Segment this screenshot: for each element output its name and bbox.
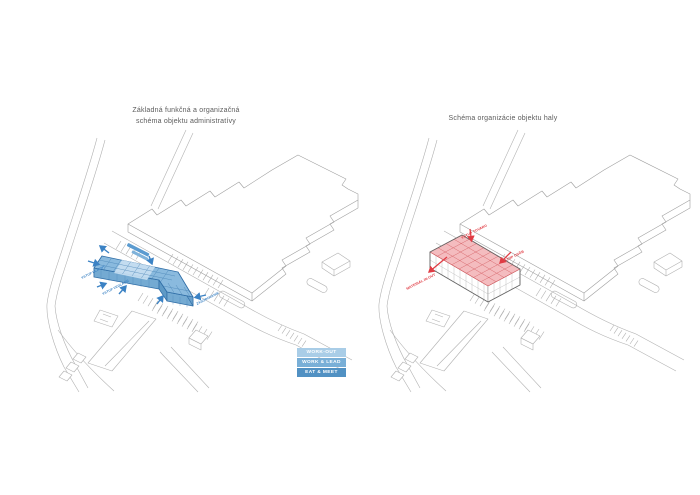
legend-row-work-lead: WORK & LEAD: [297, 358, 346, 367]
exit-arrow-top: [100, 246, 109, 253]
legend-row-eat-meet: EAT & MEET: [297, 368, 346, 377]
entry-arrow-front-left: [97, 284, 106, 288]
legend-row-workout: WORK-OUT: [297, 348, 346, 357]
function-legend: WORK-OUT WORK & LEAD EAT & MEET: [297, 348, 346, 377]
entry-arrow-roof: [149, 256, 152, 264]
architectural-diagram-sheet: Základná funkčná a organizačná schéma ob…: [0, 0, 700, 495]
right-site-plan: [379, 130, 690, 392]
label-supply: ZÁSOBOVANIE: [195, 290, 220, 306]
site-drawing: VSTUP HLAVNÝ VSTUP VEDĽAJŠÍ ZÁSOBOVANIE …: [0, 0, 700, 495]
entry-arrow-wing: [157, 296, 163, 304]
label-material-flow: MATERIÁL IN-OUT: [405, 271, 437, 290]
